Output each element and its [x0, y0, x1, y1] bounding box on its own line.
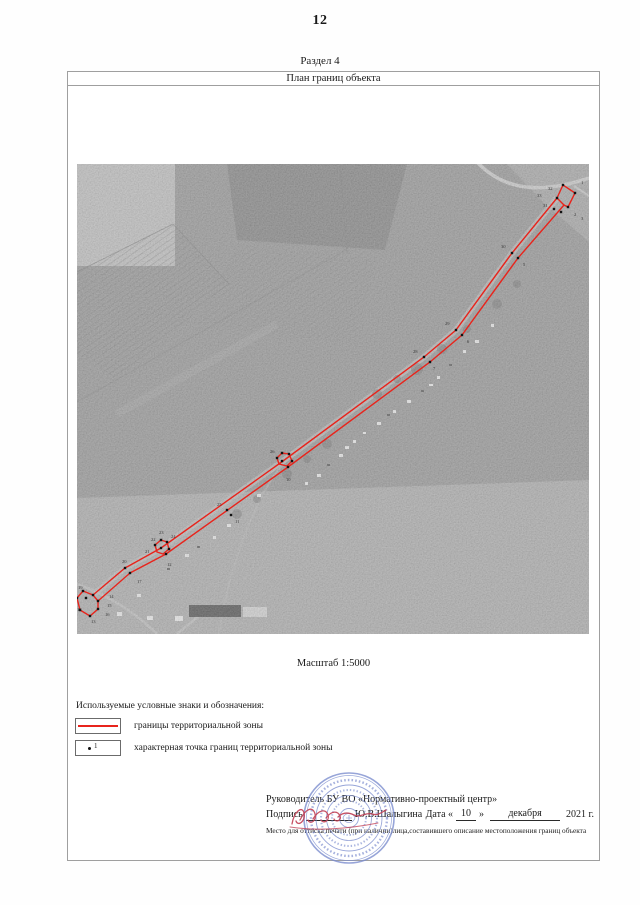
svg-text:19: 19 [78, 585, 83, 590]
plan-frame-title: План границ объекта [68, 72, 599, 86]
svg-text:29: 29 [445, 321, 450, 326]
svg-text:17: 17 [137, 579, 142, 584]
boundary-line-sample-box [75, 718, 121, 734]
point-sample-number: 1 [94, 742, 98, 750]
svg-text:16: 16 [105, 612, 110, 617]
svg-text:14: 14 [109, 594, 114, 599]
svg-text:15: 15 [107, 603, 112, 608]
svg-text:31: 31 [543, 203, 548, 208]
svg-text:33: 33 [537, 193, 542, 198]
svg-text:25: 25 [217, 502, 222, 507]
signature-row: Подпись Ю.В.Шалыгина Дата « 10 » декабря… [266, 808, 594, 821]
legend-heading: Используемые условные знаки и обозначени… [76, 701, 264, 711]
svg-text:28: 28 [413, 349, 418, 354]
point-sample-box: 1 [75, 740, 121, 756]
plan-frame: План границ объекта [67, 71, 600, 861]
stamp-note: Место для оттиска печати (при наличии)ли… [266, 825, 594, 837]
svg-text:22: 22 [151, 537, 156, 542]
legend-item-point: 1 характерная точка границ территориальн… [75, 740, 332, 756]
section-label: Раздел 4 [0, 55, 640, 67]
signature-role: Руководитель БУ ВО «Нормативно-проектный… [266, 794, 594, 806]
date-month: декабря [490, 808, 560, 821]
signature-block: Руководитель БУ ВО «Нормативно-проектный… [266, 794, 594, 837]
point-icon [88, 747, 91, 750]
svg-text:23: 23 [159, 530, 164, 535]
svg-text:26: 26 [270, 449, 275, 454]
plan-map: 1233233313052962872610251124232221201217… [77, 164, 589, 634]
map-noise [77, 164, 589, 634]
svg-text:10: 10 [286, 477, 291, 482]
svg-text:13: 13 [91, 619, 96, 624]
svg-text:18: 18 [77, 607, 82, 612]
signature-underline [306, 810, 352, 821]
svg-text:24: 24 [171, 534, 176, 539]
svg-text:30: 30 [501, 244, 506, 249]
document-page: 12 Раздел 4 План границ объекта [0, 0, 640, 905]
signature-label: Подпись [266, 809, 303, 821]
scale-label: Масштаб 1:5000 [68, 658, 599, 669]
signatory-name: Ю.В.Шалыгина [355, 809, 423, 821]
date-quote-close: » [479, 809, 484, 821]
boundary-line-icon [78, 725, 118, 727]
legend-item-boundary: границы территориальной зоны [75, 718, 263, 734]
date-label: Дата « [426, 809, 453, 821]
legend-label: характерная точка границ территориальной… [134, 743, 332, 753]
legend-label: границы территориальной зоны [134, 721, 263, 731]
svg-text:12: 12 [167, 562, 172, 567]
svg-text:32: 32 [548, 186, 553, 191]
svg-text:11: 11 [235, 519, 240, 524]
date-day: 10 [456, 808, 476, 821]
svg-text:20: 20 [122, 559, 127, 564]
svg-text:21: 21 [145, 549, 150, 554]
date-year: 2021 г. [566, 809, 594, 821]
map-texture [77, 164, 589, 634]
page-number: 12 [0, 13, 640, 29]
